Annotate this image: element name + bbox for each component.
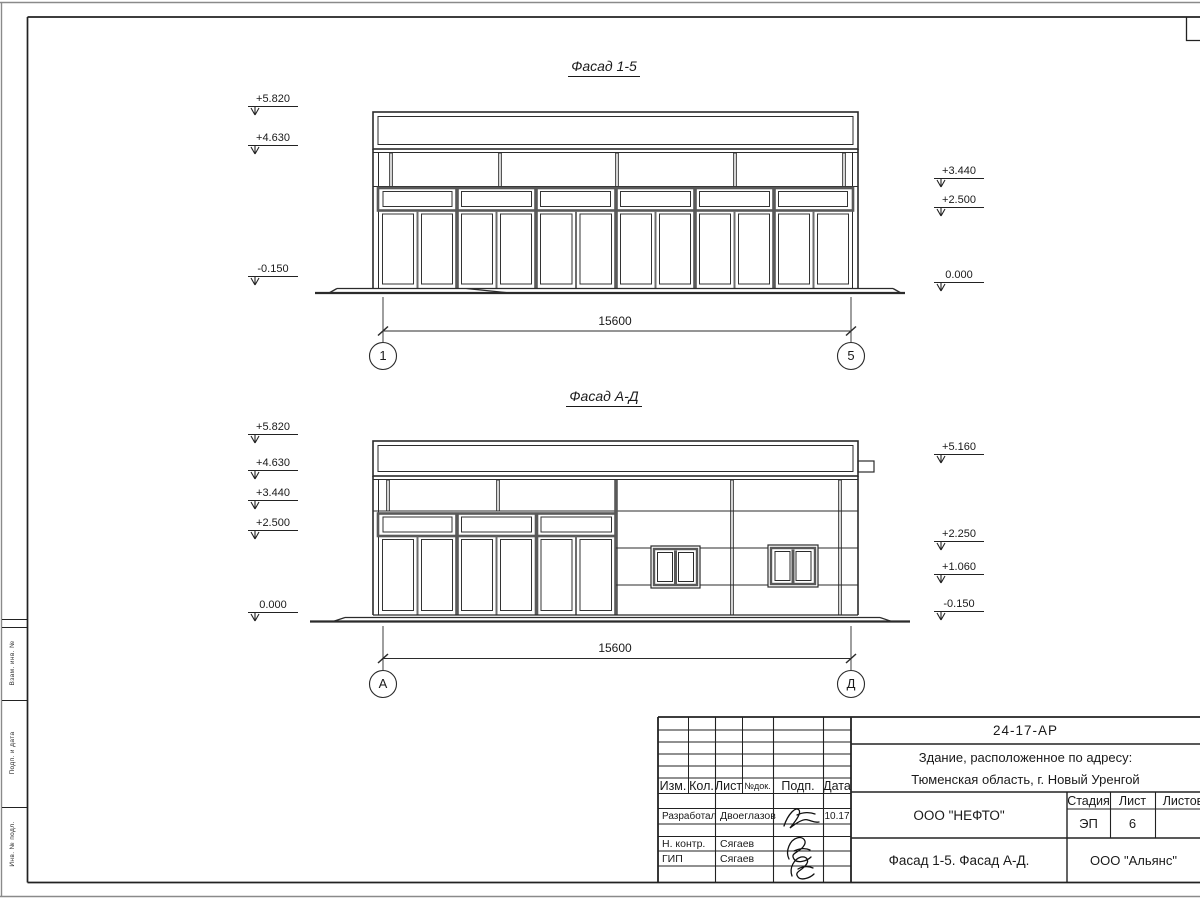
facade-a-d-title: Фасад А-Д [450,388,758,407]
sign-bracket [858,461,874,472]
dimension-value: 15600 [540,314,690,328]
elevation-mark: 0.000 [934,269,984,293]
facade-a-d-drawing [310,441,910,698]
titleblock-doc-number: 24-17-АР [851,717,1200,744]
upper-band-posts-ad [387,480,500,511]
elevation-arrow-icon [935,282,947,292]
signatures [784,809,819,879]
margin-stamp-podp: Подп. и дата [9,708,21,798]
elevation-arrow-icon [935,454,947,464]
axis-label-5: 5 [837,342,865,370]
row-name: Двоеглазов [717,808,773,824]
titleblock-object-line1: Здание, расположенное по адресу: [851,746,1200,768]
elevation-mark: +5.820 [248,421,298,445]
facade-1-5-title: Фасад 1-5 [450,58,758,77]
dimension-value: 15600 [540,641,690,655]
row-name: Сягаев [717,851,773,866]
titleblock-drawing-name: Фасад 1-5. Фасад А-Д. [851,838,1067,882]
dimension-a-d [370,626,865,698]
window-1 [651,546,700,588]
transom-band [378,188,853,211]
dimension-1-5 [370,297,865,370]
row-role: ГИП [659,851,715,866]
stage-label: Стадия [1067,792,1110,809]
elevation-arrow-icon [249,276,261,286]
elevation-mark: +5.160 [934,441,984,465]
top-right-code-box [1187,17,1200,41]
elevation-mark: +1.060 [934,561,984,585]
col-header-podp: Подп. [773,778,823,793]
elevation-mark: +2.250 [934,528,984,552]
elevation-arrow-icon [935,611,947,621]
margin-stamp-inv: Инв. № подл. [9,799,21,889]
margin-stamp-vzam: Взам. инв. № [9,618,21,708]
elevation-mark: +5.820 [248,93,298,117]
ground-line [315,289,905,294]
elevation-arrow-icon [249,500,261,510]
elevation-mark: 0.000 [248,599,298,623]
titleblock-org2: ООО "Альянс" [1067,838,1200,882]
elevation-arrow-icon [935,574,947,584]
axis-label-1: 1 [369,342,397,370]
elevation-mark: +2.500 [934,194,984,218]
row-role: Н. контр. [659,836,715,851]
elevation-mark: +4.630 [248,132,298,156]
elevation-arrow-icon [935,178,947,188]
elevation-arrow-icon [935,207,947,217]
col-header-data: Дата [823,778,851,793]
upper-band-posts [390,153,846,187]
drawing-sheet: Фасад 1-5 Фасад А-Д +5.820 +4.630 -0.150… [0,0,1200,900]
axis-label-a: А [369,670,397,698]
sheets-label: Листов [1155,792,1200,809]
sheet-label: Лист [1110,792,1155,809]
col-header-ndok: №док. [742,778,773,793]
stage-value: ЭП [1067,809,1110,838]
elevation-mark: +3.440 [934,165,984,189]
transom-band-ad [378,514,616,537]
col-header-list: Лист [715,778,742,793]
elevation-arrow-icon [249,145,261,155]
elevation-arrow-icon [249,470,261,480]
sign-band-ad [373,441,874,476]
row-name: Сягаев [717,836,773,851]
sign-band [373,112,858,149]
elevation-arrow-icon [249,106,261,116]
elevation-mark: -0.150 [934,598,984,622]
elevation-mark: +4.630 [248,457,298,481]
elevation-arrow-icon [249,434,261,444]
elevation-arrow-icon [935,541,947,551]
col-header-izm: Изм. [658,778,688,793]
sheet-number: 6 [1110,809,1155,838]
elevation-mark: -0.150 [248,263,298,287]
elevation-mark: +2.500 [248,517,298,541]
axis-label-d: Д [837,670,865,698]
row-date: 10.17 [823,808,851,824]
titleblock-object-line2: Тюменская область, г. Новый Уренгой [851,768,1200,790]
curtain-wall-glazing-ad [383,537,612,616]
window-2 [768,545,818,587]
elevation-mark: +3.440 [248,487,298,511]
col-header-kol: Кол. [688,778,715,793]
facade-1-5-drawing [315,112,905,370]
row-role: Разработал [659,808,715,824]
elevation-arrow-icon [249,612,261,622]
ground-line-ad [310,615,910,622]
curtain-wall-glazing [383,211,849,288]
signature-razrabotal [784,809,819,828]
elevation-arrow-icon [249,530,261,540]
titleblock-org: ООО "НЕФТО" [851,792,1067,838]
